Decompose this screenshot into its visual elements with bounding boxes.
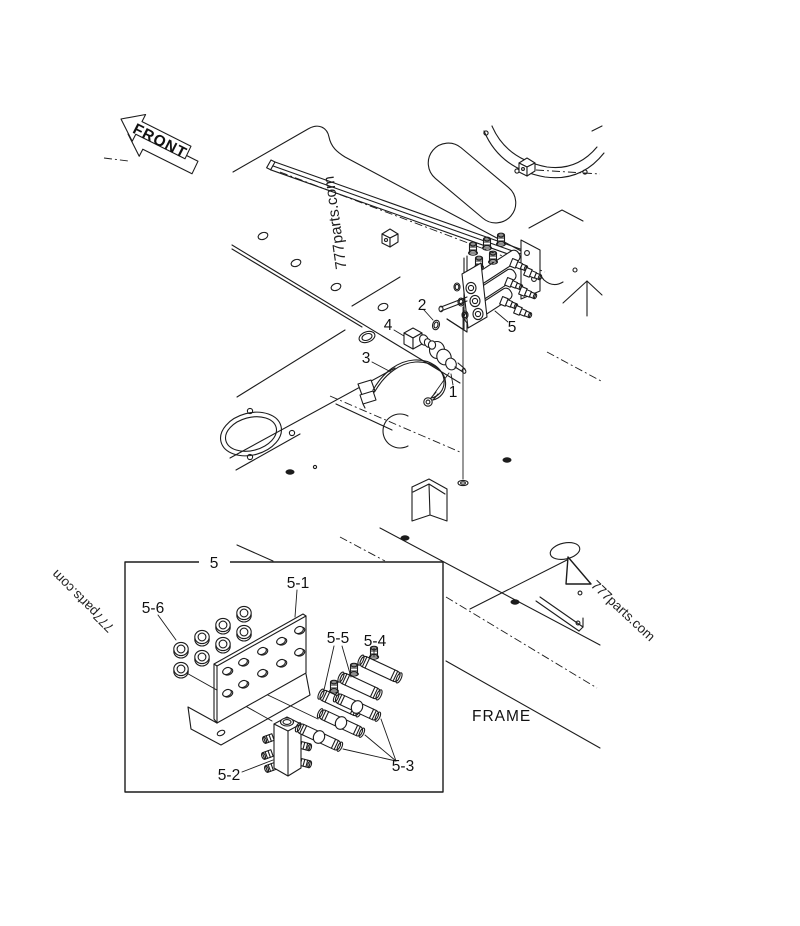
manifold-assembly	[439, 233, 543, 332]
frame-label: FRAME	[472, 708, 531, 725]
watermark-right: 777parts.com	[588, 577, 658, 644]
inset-box-label: 5	[210, 555, 219, 572]
callout-3: 3	[362, 350, 371, 367]
gusset-triangle	[566, 557, 591, 584]
parts-diagram-page: FRONT 777parts.com 777parts.com 777parts…	[0, 0, 800, 926]
callout-5-4: 5-4	[364, 633, 387, 650]
angle-bracket	[412, 479, 447, 521]
callout-5-5: 5-5	[327, 630, 349, 647]
o-ring	[431, 319, 440, 330]
support-beam	[267, 160, 545, 272]
callout-2: 2	[418, 297, 427, 314]
callout-5: 5	[508, 319, 517, 336]
pressure-sensor	[428, 341, 466, 374]
wire-harness	[358, 360, 449, 408]
inset-box: 5	[125, 555, 443, 792]
clamp-block	[519, 158, 535, 176]
callout-5-3: 5-3	[392, 758, 414, 775]
callout-4: 4	[384, 317, 393, 334]
beam-clamp-block	[382, 229, 398, 247]
callout-5-2: 5-2	[218, 767, 240, 784]
watermark-left: 777parts.com	[49, 567, 117, 635]
callout-1: 1	[449, 384, 458, 401]
parts-diagram: FRONT 777parts.com 777parts.com 777parts…	[0, 0, 800, 926]
front-arrow: FRONT	[121, 115, 198, 174]
callout-5-1: 5-1	[287, 575, 309, 592]
callout-5-6: 5-6	[142, 600, 164, 617]
flanged-opening	[216, 406, 295, 463]
